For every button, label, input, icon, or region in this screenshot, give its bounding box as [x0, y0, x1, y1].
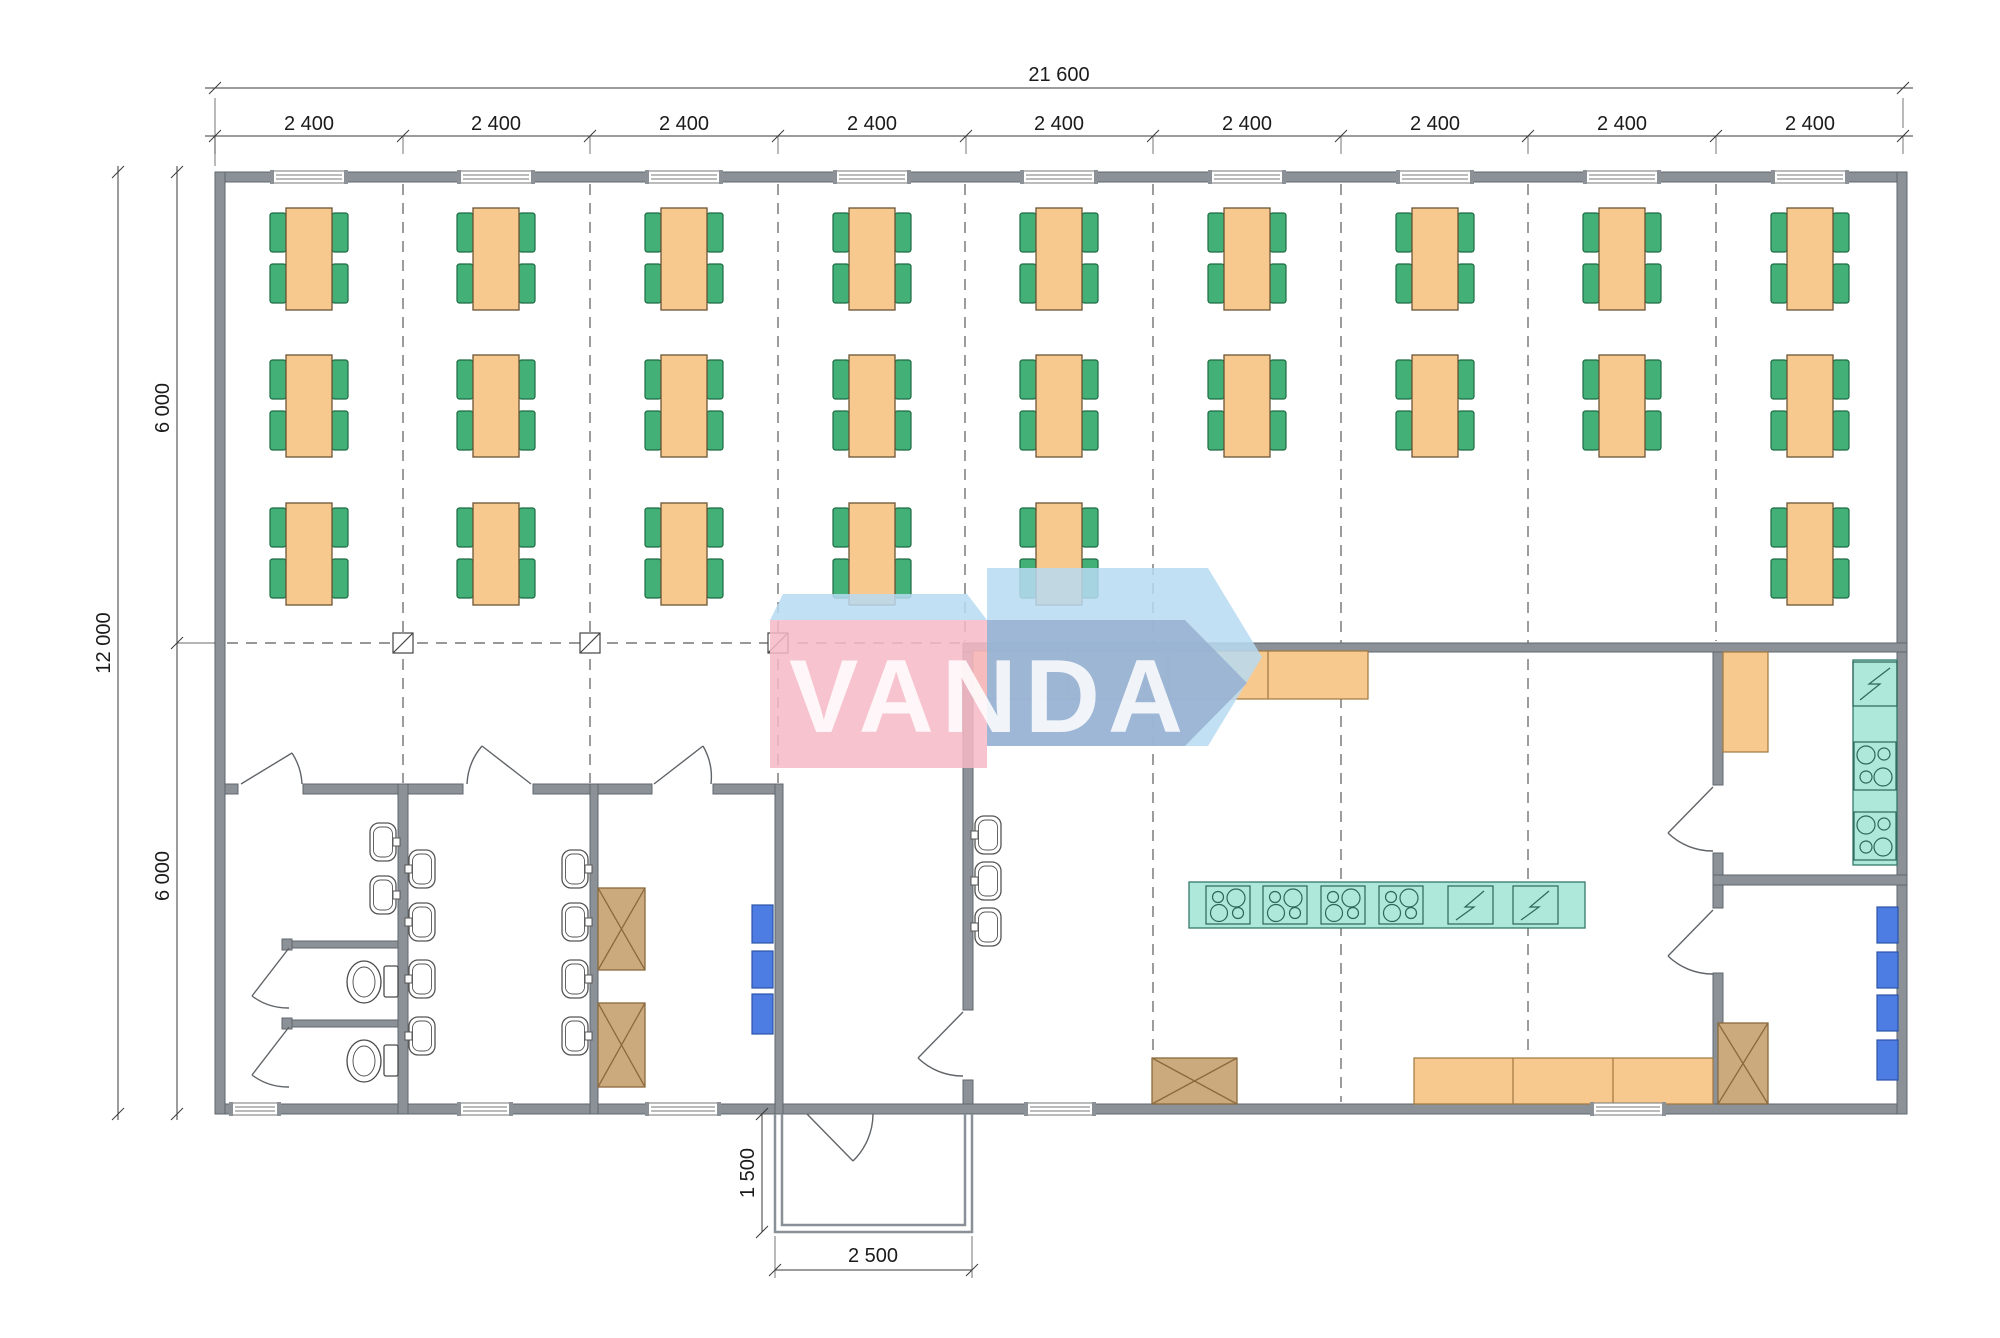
pantry-cabinet	[1723, 652, 1768, 752]
chair-icon	[1020, 264, 1036, 303]
chair-icon	[1396, 360, 1412, 399]
chair-icon	[1082, 508, 1098, 547]
fridge-icon	[1877, 907, 1898, 943]
chair-icon	[332, 264, 348, 303]
pantry-counter	[1853, 660, 1897, 865]
chair-icon	[707, 411, 723, 450]
washbasin-icon	[370, 876, 400, 914]
dining-table-group	[270, 355, 348, 457]
window-icon	[270, 170, 348, 184]
chair-icon	[457, 360, 473, 399]
chair-icon	[1208, 411, 1224, 450]
watermark: VANDA	[770, 568, 1262, 768]
cabinet-icon	[598, 888, 645, 970]
dim-label-bay: 2 400	[847, 113, 897, 135]
chair-icon	[1020, 411, 1036, 450]
window-icon	[645, 170, 723, 184]
washbasin-icon	[562, 903, 592, 941]
table-icon	[1599, 208, 1645, 310]
dining-table-group	[457, 503, 535, 605]
chair-icon	[645, 213, 661, 252]
chair-icon	[332, 360, 348, 399]
chair-icon	[707, 508, 723, 547]
window-icon	[645, 1102, 721, 1116]
fridge-icon	[752, 994, 773, 1034]
dining-table-group	[457, 355, 535, 457]
fridge-icon	[1877, 995, 1898, 1031]
toilet-icon	[347, 961, 398, 1003]
chair-icon	[519, 213, 535, 252]
door-stall-1	[252, 948, 289, 1008]
table-icon	[473, 355, 519, 457]
door-entrance	[807, 1114, 873, 1161]
dim-label-bay: 2 400	[1034, 113, 1084, 135]
floor-plan-page: 21 600 12 000 6 000 6 000 1 500	[0, 0, 2000, 1338]
window-icon	[457, 170, 535, 184]
table-icon	[1787, 355, 1833, 457]
cabinet-icon	[1718, 1023, 1768, 1104]
dining-table-group	[645, 355, 723, 457]
table-icon	[1787, 503, 1833, 605]
chair-icon	[833, 264, 849, 303]
chair-icon	[270, 508, 286, 547]
dim-label-overall-width: 21 600	[1028, 64, 1089, 86]
dining-table-group	[1396, 208, 1474, 310]
chair-icon	[1583, 213, 1599, 252]
table-icon	[1599, 355, 1645, 457]
chair-icon	[270, 264, 286, 303]
chair-icon	[645, 264, 661, 303]
dining-table-group	[1771, 208, 1849, 310]
chair-icon	[833, 508, 849, 547]
chair-icon	[645, 508, 661, 547]
chair-icon	[1020, 360, 1036, 399]
window-icon	[1020, 170, 1098, 184]
washbasin-icon	[405, 903, 435, 941]
window-icon	[229, 1102, 281, 1116]
chair-icon	[1833, 411, 1849, 450]
chair-icon	[895, 508, 911, 547]
chair-icon	[1771, 559, 1787, 598]
chair-icon	[1833, 264, 1849, 303]
chair-icon	[1771, 360, 1787, 399]
chair-icon	[457, 213, 473, 252]
dining-table-group	[1208, 355, 1286, 457]
chair-icon	[707, 559, 723, 598]
window-icon	[1771, 170, 1849, 184]
table-icon	[1224, 208, 1270, 310]
washbasin-icon	[971, 816, 1001, 854]
chair-icon	[1208, 264, 1224, 303]
floor-plan-canvas: 21 600 12 000 6 000 6 000 1 500	[0, 0, 2000, 1338]
chair-icon	[270, 559, 286, 598]
washbasin-icon	[405, 1017, 435, 1055]
table-icon	[849, 208, 895, 310]
dining-tables	[270, 208, 1849, 605]
chair-icon	[1270, 411, 1286, 450]
chair-icon	[895, 559, 911, 598]
chair-icon	[1082, 213, 1098, 252]
fridge-icon	[1877, 1040, 1898, 1080]
bay-dimension-labels: 2 4002 4002 4002 4002 4002 4002 4002 400…	[284, 113, 1835, 135]
chair-icon	[1458, 213, 1474, 252]
window-icon	[1208, 170, 1286, 184]
chair-icon	[1645, 411, 1661, 450]
chair-icon	[1208, 360, 1224, 399]
chair-icon	[1771, 508, 1787, 547]
dining-table-group	[833, 503, 911, 605]
column-marker-icon	[393, 633, 413, 653]
door-pantry-room	[1668, 787, 1713, 851]
dim-label-bay: 2 400	[1785, 113, 1835, 135]
washbasin-icon	[562, 850, 592, 888]
door-toilet-room	[241, 753, 302, 784]
dim-label-bay: 2 400	[1410, 113, 1460, 135]
dining-table-group	[645, 503, 723, 605]
chair-icon	[457, 508, 473, 547]
chair-icon	[1396, 264, 1412, 303]
dimension-porch-width: 2 500	[769, 1236, 978, 1278]
chair-icon	[519, 264, 535, 303]
dim-label-porch-width: 2 500	[848, 1245, 898, 1267]
chair-icon	[332, 508, 348, 547]
door-washroom	[467, 746, 531, 784]
chair-icon	[707, 360, 723, 399]
chair-icon	[1458, 411, 1474, 450]
chair-icon	[457, 559, 473, 598]
toilet-icon	[347, 1040, 398, 1082]
table-icon	[1787, 208, 1833, 310]
chair-icon	[519, 360, 535, 399]
porch	[775, 1114, 972, 1232]
chair-icon	[645, 411, 661, 450]
dining-table-group	[1020, 355, 1098, 457]
dim-label-bay: 2 400	[1222, 113, 1272, 135]
window-icon	[1583, 170, 1661, 184]
chair-icon	[270, 213, 286, 252]
table-icon	[661, 208, 707, 310]
chair-icon	[457, 264, 473, 303]
dim-label-height-upper: 6 000	[152, 383, 174, 433]
door-storage-room	[654, 746, 711, 784]
chair-icon	[1833, 508, 1849, 547]
chair-icon	[270, 411, 286, 450]
dining-table-group	[1771, 355, 1849, 457]
washbasins	[370, 816, 1001, 1055]
washbasin-icon	[971, 862, 1001, 900]
kitchen-bottom-counter	[1414, 1058, 1713, 1104]
washbasin-icon	[405, 850, 435, 888]
washbasin-icon	[562, 960, 592, 998]
chair-icon	[1396, 411, 1412, 450]
dim-label-height-lower: 6 000	[152, 851, 174, 901]
chair-icon	[457, 411, 473, 450]
dim-label-bay: 2 400	[659, 113, 709, 135]
table-icon	[1412, 208, 1458, 310]
table-icon	[473, 208, 519, 310]
dining-table-group	[1396, 355, 1474, 457]
table-icon	[286, 503, 332, 605]
chair-icon	[1270, 213, 1286, 252]
dining-table-group	[833, 355, 911, 457]
chair-icon	[833, 411, 849, 450]
chair-icon	[707, 264, 723, 303]
chair-icon	[332, 559, 348, 598]
chair-icon	[1771, 264, 1787, 303]
dining-table-group	[1020, 208, 1098, 310]
chair-icon	[519, 411, 535, 450]
table-icon	[286, 208, 332, 310]
door-cold-room	[1668, 910, 1713, 974]
chair-icon	[895, 264, 911, 303]
dim-label-bay: 2 400	[1597, 113, 1647, 135]
table-icon	[849, 355, 895, 457]
column-marker-icon	[580, 633, 600, 653]
chair-icon	[1270, 360, 1286, 399]
chair-icon	[645, 559, 661, 598]
table-icon	[661, 355, 707, 457]
chair-icon	[1833, 360, 1849, 399]
window-icon	[833, 170, 911, 184]
window-icon	[1590, 1102, 1666, 1116]
chair-icon	[1833, 213, 1849, 252]
dining-table-group	[1208, 208, 1286, 310]
window-icon	[457, 1102, 513, 1116]
chair-icon	[833, 559, 849, 598]
dining-table-group	[1771, 503, 1849, 605]
table-icon	[473, 503, 519, 605]
window-icon	[1024, 1102, 1096, 1116]
chair-icon	[1208, 213, 1224, 252]
washbasin-icon	[370, 823, 400, 861]
chair-icon	[895, 360, 911, 399]
chair-icon	[1082, 411, 1098, 450]
dimension-porch-depth: 1 500	[737, 1108, 768, 1238]
fridge-icon	[752, 905, 773, 943]
chair-icon	[1020, 213, 1036, 252]
table-icon	[1036, 355, 1082, 457]
dimension-left-overall: 12 000	[93, 166, 124, 1120]
dim-label-porch-depth: 1 500	[737, 1148, 759, 1198]
chair-icon	[1645, 264, 1661, 303]
cabinet-icon	[598, 1003, 645, 1087]
chair-icon	[1396, 213, 1412, 252]
dining-table-group	[1583, 355, 1661, 457]
table-icon	[1036, 208, 1082, 310]
chair-icon	[645, 360, 661, 399]
chair-icon	[1458, 360, 1474, 399]
chair-icon	[1020, 508, 1036, 547]
dimension-left-halves: 6 000 6 000	[152, 166, 215, 1120]
chair-icon	[519, 559, 535, 598]
chair-icon	[270, 360, 286, 399]
dim-label-bay: 2 400	[284, 113, 334, 135]
dining-table-group	[270, 503, 348, 605]
chair-icon	[332, 213, 348, 252]
door-kitchen	[918, 1012, 963, 1076]
chair-icon	[895, 213, 911, 252]
dining-table-group	[1583, 208, 1661, 310]
table-icon	[661, 503, 707, 605]
chair-icon	[1270, 264, 1286, 303]
table-icon	[286, 355, 332, 457]
dim-label-overall-height: 12 000	[93, 612, 115, 673]
chair-icon	[1082, 360, 1098, 399]
dining-table-group	[457, 208, 535, 310]
chair-icon	[1645, 360, 1661, 399]
chair-icon	[1771, 411, 1787, 450]
fridge-icon	[1877, 952, 1898, 988]
chair-icon	[833, 213, 849, 252]
stove-island	[1189, 882, 1585, 928]
chair-icon	[1583, 411, 1599, 450]
chair-icon	[895, 411, 911, 450]
chair-icon	[519, 508, 535, 547]
chair-icon	[1082, 264, 1098, 303]
table-icon	[1412, 355, 1458, 457]
cabinet-icon	[1152, 1058, 1237, 1104]
chair-icon	[1771, 213, 1787, 252]
dining-table-group	[270, 208, 348, 310]
window-icon	[1396, 170, 1474, 184]
washbasin-icon	[971, 908, 1001, 946]
chair-icon	[332, 411, 348, 450]
chair-icon	[1458, 264, 1474, 303]
chair-icon	[833, 360, 849, 399]
dining-table-group	[645, 208, 723, 310]
washbasin-icon	[562, 1017, 592, 1055]
chair-icon	[1645, 213, 1661, 252]
washbasin-icon	[405, 960, 435, 998]
chair-icon	[1583, 360, 1599, 399]
table-icon	[849, 503, 895, 605]
chair-icon	[1833, 559, 1849, 598]
chair-icon	[707, 213, 723, 252]
watermark-pink-top-face	[770, 594, 987, 620]
dining-table-group	[833, 208, 911, 310]
dim-label-bay: 2 400	[471, 113, 521, 135]
table-icon	[1224, 355, 1270, 457]
door-stall-2	[252, 1027, 289, 1087]
chair-icon	[1583, 264, 1599, 303]
watermark-text: VANDA	[789, 639, 1191, 755]
fridge-icon	[752, 951, 773, 988]
